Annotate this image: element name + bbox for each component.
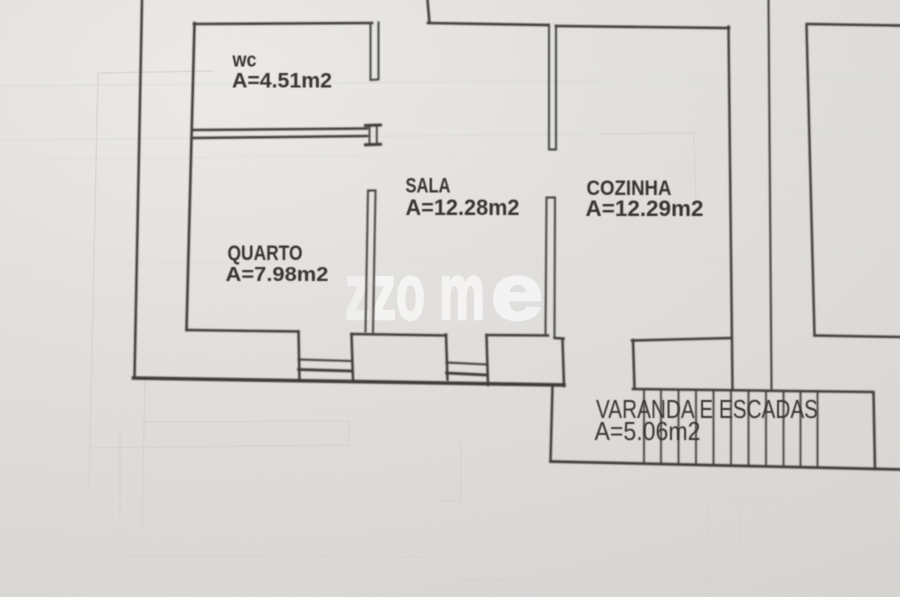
svg-text:A=7.98m2: A=7.98m2	[226, 263, 329, 286]
svg-text:A=12.29m2: A=12.29m2	[586, 196, 704, 221]
svg-text:A=5.06m2: A=5.06m2	[595, 416, 701, 446]
svg-text:A=4.51m2: A=4.51m2	[232, 70, 332, 93]
svg-text:o: o	[396, 247, 425, 336]
svg-text:QUARTO: QUARTO	[228, 242, 303, 265]
svg-text:A=12.28m2: A=12.28m2	[406, 195, 520, 220]
svg-text:e: e	[491, 247, 543, 336]
svg-text:wc: wc	[232, 50, 257, 72]
svg-text:m: m	[439, 247, 485, 336]
